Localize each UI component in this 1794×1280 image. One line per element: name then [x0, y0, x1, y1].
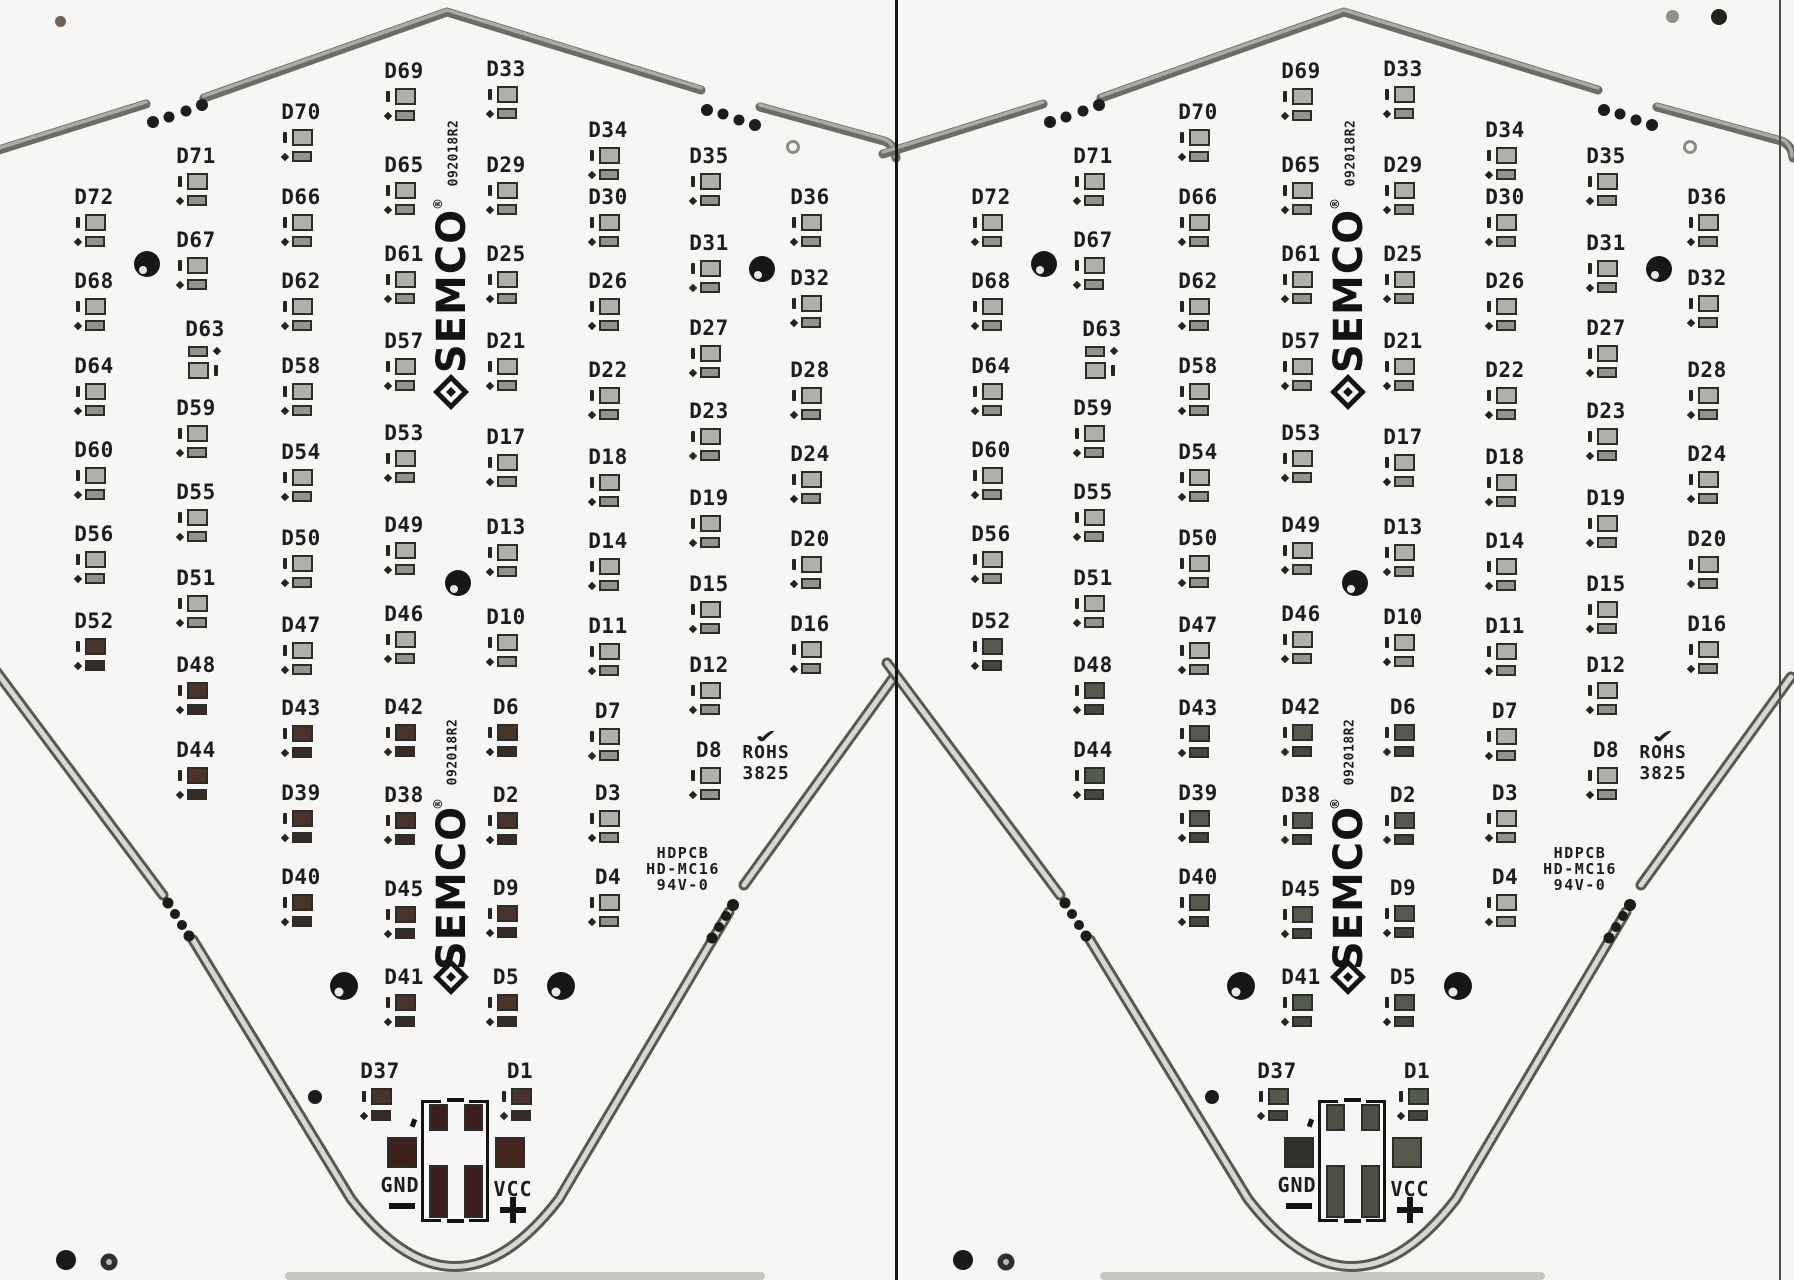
polarity-bar-mark	[386, 453, 390, 464]
led-designator: D11	[588, 614, 627, 638]
led-designator: D25	[486, 242, 525, 266]
led-designator: D70	[281, 100, 320, 124]
led-designator: D60	[74, 438, 113, 462]
polarity-bar-mark	[973, 301, 977, 312]
led-designator: D52	[971, 609, 1010, 633]
polarity-bar-mark	[1689, 390, 1693, 401]
led-designator: D47	[281, 613, 320, 637]
fiducial-ring	[788, 142, 799, 153]
led-designator: D36	[1687, 185, 1726, 209]
led-pad-cathode	[292, 832, 312, 843]
led-pad-anode	[187, 682, 208, 699]
led-pad-anode	[85, 467, 106, 484]
led-pad-anode	[1084, 425, 1105, 442]
led-pad-cathode	[1698, 493, 1718, 504]
led-pad-cathode	[1394, 566, 1414, 577]
led-pad-anode	[292, 214, 313, 231]
led-pad-cathode	[85, 320, 105, 331]
led-designator: D65	[1281, 153, 1320, 177]
led-designator: D49	[384, 513, 423, 537]
polarity-bar-mark	[792, 644, 796, 655]
led-pad-anode	[497, 454, 518, 471]
led-pad-cathode	[292, 916, 312, 927]
gnd-label: GND	[380, 1173, 419, 1197]
led-pad-cathode	[1496, 496, 1516, 507]
led-pad-anode	[395, 724, 416, 741]
led-designator: D15	[689, 572, 728, 596]
led-designator: D42	[384, 695, 423, 719]
brand-diamond-logo-lower	[433, 959, 469, 995]
led-designator: D53	[1281, 421, 1320, 445]
led-pad-anode	[1292, 724, 1313, 741]
top-edge-light	[883, 10, 1792, 156]
led-designator: D8	[1593, 738, 1619, 762]
led-designator: D10	[486, 605, 525, 629]
led-designator: D28	[1687, 358, 1726, 382]
led-designator: D59	[1073, 396, 1112, 420]
led-pad-anode	[1189, 214, 1210, 231]
led-designator: D15	[1586, 572, 1625, 596]
polarity-bar-mark	[1180, 558, 1184, 569]
led-designator: D58	[281, 354, 320, 378]
brand-wordmark-lower: SEMCO	[429, 806, 475, 970]
led-pad-anode	[1292, 812, 1313, 829]
polarity-bar-mark	[1259, 1091, 1263, 1102]
led-pad-anode	[1597, 515, 1618, 532]
led-designator: D21	[1383, 329, 1422, 353]
led-pad-cathode	[1085, 346, 1105, 357]
polarity-bar-mark	[488, 997, 492, 1008]
led-designator: D41	[384, 965, 423, 989]
led-designator: D9	[493, 876, 519, 900]
led-pad-cathode	[1698, 409, 1718, 420]
module-pad-top-right	[464, 1104, 483, 1131]
led-pad-anode	[497, 86, 518, 103]
brand-wordmark-upper: SEMCO	[429, 209, 475, 373]
led-designator: D42	[1281, 695, 1320, 719]
led-pad-anode	[497, 544, 518, 561]
led-pad-anode	[1189, 555, 1210, 572]
led-designator: D61	[1281, 242, 1320, 266]
brand-wordmark-upper: SEMCO	[1326, 209, 1372, 373]
led-designator: D17	[1383, 425, 1422, 449]
led-pad-cathode	[395, 472, 415, 483]
led-pad-anode	[599, 558, 620, 575]
polarity-bar-mark	[1385, 361, 1389, 372]
led-pad-cathode	[700, 282, 720, 293]
gnd-pad	[387, 1137, 417, 1168]
polarity-bar-mark	[1487, 390, 1491, 401]
module-pad-bottom-left	[1326, 1165, 1345, 1218]
led-pad-anode	[1698, 641, 1719, 658]
polarity-bar-mark	[1385, 547, 1389, 558]
led-designator: D65	[384, 153, 423, 177]
led-pad-cathode	[1189, 151, 1209, 162]
led-designator: D6	[1390, 695, 1416, 719]
polarity-bar-mark	[76, 386, 80, 397]
led-pad-anode	[1496, 387, 1517, 404]
polarity-bar-mark	[792, 217, 796, 228]
led-pad-cathode	[497, 476, 517, 487]
led-pad-anode	[497, 812, 518, 829]
led-designator: D16	[790, 612, 829, 636]
polarity-bar-mark	[178, 260, 182, 271]
led-pad-cathode	[292, 320, 312, 331]
led-pad-anode	[700, 682, 721, 699]
led-pad-anode	[1496, 728, 1517, 745]
polarity-bar-mark	[1180, 645, 1184, 656]
rohs-code: 3825	[742, 763, 789, 784]
led-designator: D12	[689, 653, 728, 677]
polarity-bar-mark	[1075, 770, 1079, 781]
led-pad-cathode	[1189, 577, 1209, 588]
led-pad-cathode	[982, 320, 1002, 331]
led-pad-cathode	[292, 577, 312, 588]
led-pad-cathode	[1292, 1016, 1312, 1027]
polarity-bar-mark	[590, 897, 594, 908]
led-pad-anode	[1292, 631, 1313, 648]
led-designator: D19	[689, 486, 728, 510]
tooling-dot-top-right-black	[1711, 9, 1727, 25]
led-designator: D9	[1390, 876, 1416, 900]
polarity-bar-mark	[488, 547, 492, 558]
led-pad-cathode	[395, 1016, 415, 1027]
polarity-bar-mark	[590, 217, 594, 228]
led-designator: D32	[790, 266, 829, 290]
led-pad-cathode	[1496, 580, 1516, 591]
led-pad-cathode	[1597, 282, 1617, 293]
polarity-bar-mark	[1283, 453, 1287, 464]
polarity-bar-mark	[1588, 348, 1592, 359]
polarity-bar-mark	[590, 646, 594, 657]
polarity-bar-mark	[1180, 301, 1184, 312]
led-designator: D66	[1178, 185, 1217, 209]
board-outline	[897, 0, 1794, 1280]
led-pad-anode	[292, 469, 313, 486]
led-pad-cathode	[599, 169, 619, 180]
led-pad-cathode	[1597, 195, 1617, 206]
polarity-bar-mark	[178, 428, 182, 439]
led-designator: D30	[588, 185, 627, 209]
led-designator: D11	[1485, 614, 1524, 638]
polarity-bar-mark	[1588, 176, 1592, 187]
brand-diamond-logo-lower	[1330, 959, 1366, 995]
polarity-bar-mark	[386, 274, 390, 285]
rohs-marking: ✔ ROHS 3825	[742, 728, 789, 784]
polarity-bar-mark	[1385, 89, 1389, 100]
led-pad-anode	[1394, 905, 1415, 922]
led-pad-anode	[1084, 509, 1105, 526]
led-pad-anode	[1084, 595, 1105, 612]
right-edge-divider	[1779, 0, 1781, 1280]
led-pad-anode	[1189, 725, 1210, 742]
led-designator: D70	[1178, 100, 1217, 124]
led-pad-cathode	[599, 409, 619, 420]
polarity-bar-mark	[1399, 1091, 1403, 1102]
led-designator: D30	[1485, 185, 1524, 209]
led-pad-cathode	[511, 1110, 531, 1121]
polarity-bar-mark	[691, 263, 695, 274]
polarity-bar-mark	[973, 641, 977, 652]
led-designator: D55	[1073, 480, 1112, 504]
led-pad-anode	[497, 634, 518, 651]
serial-number-upper: 092018R2	[1344, 120, 1359, 187]
led-designator: D67	[176, 228, 215, 252]
led-pad-anode	[187, 595, 208, 612]
polarity-bar-mark	[1588, 685, 1592, 696]
led-pad-cathode	[1189, 664, 1209, 675]
led-pad-anode	[1496, 558, 1517, 575]
led-pad-cathode	[1292, 472, 1312, 483]
polarity-bar-mark	[386, 815, 390, 826]
part-line-1: HDPCB	[1543, 845, 1617, 861]
polarity-bar-mark	[1180, 386, 1184, 397]
polarity-bar-mark	[386, 634, 390, 645]
led-designator: D40	[1178, 865, 1217, 889]
led-pad-cathode	[85, 236, 105, 247]
led-designator: D19	[1586, 486, 1625, 510]
polarity-bar-mark	[1283, 909, 1287, 920]
led-pad-cathode	[497, 108, 517, 119]
led-pad-cathode	[1597, 789, 1617, 800]
led-pad-anode	[1394, 86, 1415, 103]
led-pad-cathode	[292, 236, 312, 247]
led-designator: D29	[486, 153, 525, 177]
led-designator: D28	[790, 358, 829, 382]
led-pad-cathode	[801, 409, 821, 420]
led-pad-cathode	[1084, 531, 1104, 542]
led-designator: D54	[281, 440, 320, 464]
led-pad-anode	[1394, 994, 1415, 1011]
led-designator: D35	[689, 144, 728, 168]
led-pad-anode	[1408, 1088, 1429, 1105]
polarity-bar-mark	[1487, 813, 1491, 824]
led-designator: D34	[1485, 118, 1524, 142]
led-designator: D2	[493, 783, 519, 807]
polarity-bar-mark	[488, 457, 492, 468]
polarity-bar-mark	[1283, 545, 1287, 556]
led-pad-cathode	[395, 653, 415, 664]
led-pad-anode	[187, 257, 208, 274]
led-pad-anode	[700, 601, 721, 618]
led-pad-anode	[1496, 214, 1517, 231]
led-pad-anode	[982, 383, 1003, 400]
led-pad-anode	[1084, 682, 1105, 699]
led-pad-anode	[1292, 271, 1313, 288]
led-pad-cathode	[497, 656, 517, 667]
led-pad-cathode	[1189, 236, 1209, 247]
led-pad-cathode	[497, 746, 517, 757]
board-outline	[0, 0, 897, 1280]
led-pad-anode	[292, 642, 313, 659]
led-designator: D52	[74, 609, 113, 633]
tooling-dot-top-right-gray	[1666, 10, 1679, 23]
polarity-bar-mark	[691, 348, 695, 359]
led-designator: D38	[1281, 783, 1320, 807]
pcb-photo: { "board": { "brand_word": "SEMCO", "reg…	[0, 0, 1794, 1280]
led-pad-cathode	[497, 834, 517, 845]
led-pad-cathode	[497, 927, 517, 938]
led-pad-anode	[1189, 469, 1210, 486]
polarity-bar-mark	[1385, 727, 1389, 738]
led-designator: D31	[1586, 231, 1625, 255]
polarity-bar-mark	[178, 685, 182, 696]
polarity-bar-mark	[1487, 150, 1491, 161]
led-designator: D33	[1383, 57, 1422, 81]
led-pad-anode	[700, 428, 721, 445]
led-pad-cathode	[982, 660, 1002, 671]
led-pad-cathode	[187, 279, 207, 290]
led-pad-cathode	[599, 750, 619, 761]
polarity-bar-mark	[1588, 518, 1592, 529]
polarity-bar-mark	[691, 770, 695, 781]
led-pad-anode	[1597, 767, 1618, 784]
led-pad-cathode	[497, 204, 517, 215]
led-pad-anode	[395, 450, 416, 467]
polarity-bar-mark	[283, 813, 287, 824]
led-designator: D18	[588, 445, 627, 469]
led-designator: D24	[1687, 442, 1726, 466]
led-pad-anode	[1189, 129, 1210, 146]
polarity-bar-mark	[386, 909, 390, 920]
polarity-bar-mark	[590, 731, 594, 742]
led-pad-anode	[187, 173, 208, 190]
led-pad-cathode	[497, 566, 517, 577]
led-pad-anode	[1394, 454, 1415, 471]
led-designator: D62	[1178, 269, 1217, 293]
led-pad-anode	[1189, 383, 1210, 400]
part-line-2: HD-MC16	[1543, 861, 1617, 877]
led-pad-anode	[395, 271, 416, 288]
module-pad-bottom-right	[1361, 1165, 1380, 1218]
led-designator: D44	[176, 738, 215, 762]
led-pad-anode	[1292, 182, 1313, 199]
led-pad-cathode	[395, 928, 415, 939]
led-pad-cathode	[85, 405, 105, 416]
led-pad-anode	[700, 515, 721, 532]
led-designator: D18	[1485, 445, 1524, 469]
led-designator: D26	[1485, 269, 1524, 293]
led-designator: D58	[1178, 354, 1217, 378]
led-pad-anode	[395, 906, 416, 923]
led-designator: D8	[696, 738, 722, 762]
top-edge-dark	[883, 12, 1793, 158]
led-pad-cathode	[1597, 704, 1617, 715]
led-pad-anode	[292, 810, 313, 827]
rohs-marking: ✔ ROHS 3825	[1639, 728, 1686, 784]
led-designator: D22	[1485, 358, 1524, 382]
led-pad-anode	[1597, 260, 1618, 277]
part-number-block: HDPCB HD-MC16 94V-0	[646, 845, 720, 893]
led-pad-anode	[599, 810, 620, 827]
polarity-bar-mark	[1385, 457, 1389, 468]
led-pad-cathode	[1496, 832, 1516, 843]
led-pad-anode	[187, 767, 208, 784]
led-pad-cathode	[1292, 293, 1312, 304]
serial-number-lower: 092018R2	[446, 719, 461, 786]
led-pad-cathode	[1189, 405, 1209, 416]
led-pad-anode	[1496, 894, 1517, 911]
polarity-bar-mark	[691, 685, 695, 696]
led-designator: D57	[384, 329, 423, 353]
led-pad-cathode	[85, 660, 105, 671]
led-pad-cathode	[1268, 1110, 1288, 1121]
polarity-bar-mark	[76, 217, 80, 228]
part-line-3: 94V-0	[646, 877, 720, 893]
led-designator: D67	[1073, 228, 1112, 252]
polarity-bar-mark	[283, 728, 287, 739]
led-pad-cathode	[700, 367, 720, 378]
polarity-bar-mark	[283, 301, 287, 312]
led-designator: D61	[384, 242, 423, 266]
led-pad-anode	[982, 551, 1003, 568]
polarity-bar-mark	[386, 361, 390, 372]
gnd-label: GND	[1277, 1173, 1316, 1197]
led-pad-cathode	[395, 204, 415, 215]
serial-number-lower: 092018R2	[1343, 719, 1358, 786]
led-pad-cathode	[1084, 195, 1104, 206]
led-pad-anode	[395, 994, 416, 1011]
led-designator: D37	[1257, 1059, 1296, 1083]
led-pad-anode	[371, 1088, 392, 1105]
led-pad-cathode	[395, 293, 415, 304]
led-pad-cathode	[1084, 704, 1104, 715]
led-designator: D12	[1586, 653, 1625, 677]
led-pad-anode	[1189, 642, 1210, 659]
polarity-bar-mark	[1180, 472, 1184, 483]
pcb-panel-right: 092018R2 ® SEMCO 092018R2 ® SEMCO ✔ ROHS…	[897, 0, 1794, 1280]
led-pad-cathode	[1189, 747, 1209, 758]
polarity-bar-mark	[178, 512, 182, 523]
led-designator: D41	[1281, 965, 1320, 989]
led-designator: D63	[185, 317, 224, 341]
led-pad-anode	[1698, 295, 1719, 312]
polarity-bar-mark	[792, 390, 796, 401]
led-pad-anode	[187, 509, 208, 526]
led-pad-cathode	[85, 489, 105, 500]
led-designator: D68	[971, 269, 1010, 293]
led-pad-cathode	[292, 664, 312, 675]
led-pad-anode	[292, 383, 313, 400]
led-pad-anode	[1189, 298, 1210, 315]
polarity-bar-mark	[362, 1091, 366, 1102]
led-pad-anode	[599, 474, 620, 491]
led-designator: D38	[384, 783, 423, 807]
polarity-bar-mark	[283, 897, 287, 908]
led-designator: D5	[493, 965, 519, 989]
led-pad-anode	[1394, 724, 1415, 741]
led-pad-anode	[599, 147, 620, 164]
led-designator: D39	[281, 781, 320, 805]
led-pad-anode	[599, 643, 620, 660]
part-line-1: HDPCB	[646, 845, 720, 861]
led-pad-anode	[292, 894, 313, 911]
led-pad-anode	[1189, 810, 1210, 827]
led-pad-cathode	[1496, 236, 1516, 247]
polarity-bar-mark	[1689, 474, 1693, 485]
led-pad-anode	[395, 358, 416, 375]
led-pad-cathode	[1496, 169, 1516, 180]
led-pad-anode	[395, 542, 416, 559]
led-pad-cathode	[1394, 656, 1414, 667]
polarity-bar-mark	[1588, 604, 1592, 615]
led-pad-anode	[801, 641, 822, 658]
polarity-bar-mark	[590, 477, 594, 488]
polarity-bar-mark	[283, 217, 287, 228]
led-designator: D46	[384, 602, 423, 626]
led-pad-anode	[1085, 362, 1106, 379]
polarity-bar-mark	[691, 176, 695, 187]
